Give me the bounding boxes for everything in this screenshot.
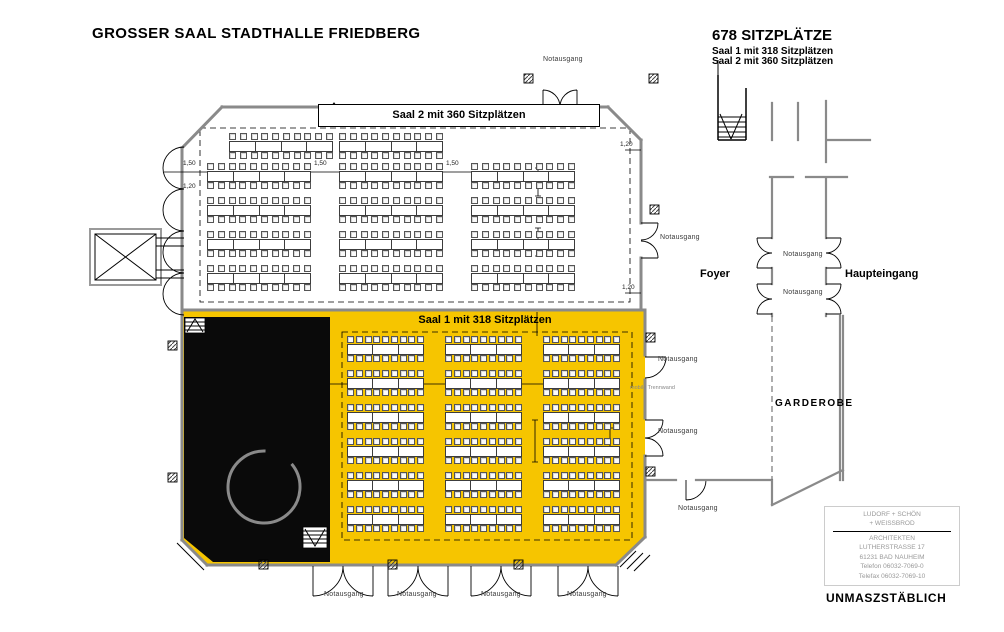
notausgang-label: Notausgang (324, 591, 364, 598)
chair-icon (304, 231, 311, 238)
chair-icon (525, 163, 532, 170)
chair-icon (471, 216, 478, 223)
chair-icon (471, 525, 478, 532)
chair-icon (552, 423, 559, 430)
chair-icon (613, 506, 620, 513)
seat-block (207, 231, 311, 257)
chair-icon (503, 265, 510, 272)
chair-icon (408, 389, 415, 396)
chair-icon (294, 152, 301, 159)
chair-icon (350, 284, 357, 291)
chair-icon (293, 197, 300, 204)
chair-icon (371, 250, 378, 257)
chair-icon (546, 284, 553, 291)
chair-icon (240, 152, 247, 159)
chair-icon (382, 216, 389, 223)
chair-icon (347, 389, 354, 396)
chair-icon (480, 336, 487, 343)
corridor-doors (757, 238, 841, 314)
chair-icon (371, 284, 378, 291)
chair-icon (543, 472, 550, 479)
chair-icon (471, 163, 478, 170)
chair-icon (546, 182, 553, 189)
chair-icon (361, 250, 368, 257)
chair-icon (239, 163, 246, 170)
chair-icon (436, 250, 443, 257)
chair-icon (339, 133, 346, 140)
chair-icon (561, 438, 568, 445)
chair-icon (493, 250, 500, 257)
chair-icon (489, 370, 496, 377)
chair-icon (207, 216, 214, 223)
chair-icon (404, 133, 411, 140)
seat-block (543, 370, 620, 396)
chair-icon (613, 389, 620, 396)
chair-icon (506, 525, 513, 532)
chair-icon (471, 472, 478, 479)
architect-city: 61231 BAD NAUHEIM (825, 553, 959, 562)
chair-icon (382, 457, 389, 464)
chair-icon (536, 265, 543, 272)
chair-icon (463, 491, 470, 498)
chair-icon (471, 355, 478, 362)
chair-icon (261, 231, 268, 238)
chair-icon (471, 423, 478, 430)
table-row (339, 273, 443, 284)
chair-icon (350, 133, 357, 140)
chair-icon (339, 197, 346, 204)
chair-icon (207, 197, 214, 204)
table-row (347, 344, 424, 355)
chair-icon (454, 404, 461, 411)
chair-icon (445, 491, 452, 498)
chair-icon (417, 438, 424, 445)
chair-icon (261, 152, 268, 159)
chair-icon (463, 355, 470, 362)
chair-icon (480, 355, 487, 362)
chair-icon (471, 231, 478, 238)
chair-icon (339, 265, 346, 272)
chair-icon (371, 265, 378, 272)
chair-icon (414, 163, 421, 170)
chair-icon (373, 457, 380, 464)
chair-icon (489, 336, 496, 343)
chair-icon (514, 265, 521, 272)
chair-icon (568, 197, 575, 204)
chair-icon (506, 389, 513, 396)
chair-icon (506, 423, 513, 430)
chair-icon (489, 472, 496, 479)
chair-icon (587, 472, 594, 479)
chair-icon (613, 438, 620, 445)
chair-icon (569, 506, 576, 513)
table-row (445, 412, 522, 423)
chair-icon (373, 355, 380, 362)
chair-icon (498, 506, 505, 513)
chair-icon (436, 163, 443, 170)
chair-icon (503, 182, 510, 189)
architect-block: LUDORF + SCHÖN + WEISSBROD ARCHITEKTEN L… (824, 506, 960, 586)
chair-icon (347, 506, 354, 513)
seat-block (543, 506, 620, 532)
chair-icon (356, 506, 363, 513)
chair-icon (463, 525, 470, 532)
chair-icon (218, 197, 225, 204)
chair-icon (498, 457, 505, 464)
chair-icon (356, 389, 363, 396)
chair-icon (391, 506, 398, 513)
chair-icon (425, 265, 432, 272)
chair-icon (543, 457, 550, 464)
chair-icon (515, 472, 522, 479)
chair-icon (404, 250, 411, 257)
chair-icon (356, 423, 363, 430)
chair-icon (304, 133, 311, 140)
chair-icon (404, 197, 411, 204)
chair-icon (503, 163, 510, 170)
chair-icon (218, 284, 225, 291)
chair-icon (596, 457, 603, 464)
chair-icon (543, 506, 550, 513)
chair-icon (417, 491, 424, 498)
chair-icon (480, 389, 487, 396)
chair-icon (569, 423, 576, 430)
chair-icon (587, 423, 594, 430)
chair-icon (498, 355, 505, 362)
chair-icon (261, 216, 268, 223)
table-row (543, 412, 620, 423)
chair-icon (272, 163, 279, 170)
chair-icon (506, 355, 513, 362)
chair-icon (480, 457, 487, 464)
chair-icon (239, 250, 246, 257)
chair-icon (489, 438, 496, 445)
table-row (445, 344, 522, 355)
chair-icon (417, 506, 424, 513)
chair-icon (347, 423, 354, 430)
table-row (543, 378, 620, 389)
chair-icon (365, 438, 372, 445)
chair-icon (371, 152, 378, 159)
chair-icon (261, 197, 268, 204)
chair-icon (498, 404, 505, 411)
chair-icon (417, 457, 424, 464)
chair-icon (596, 438, 603, 445)
chair-icon (304, 250, 311, 257)
chair-icon (489, 491, 496, 498)
chair-icon (463, 438, 470, 445)
chair-icon (361, 265, 368, 272)
chair-icon (515, 389, 522, 396)
table-row (445, 446, 522, 457)
chair-icon (382, 197, 389, 204)
chair-icon (587, 370, 594, 377)
chair-icon (365, 355, 372, 362)
chair-icon (272, 182, 279, 189)
chair-icon (425, 133, 432, 140)
table-row (207, 205, 311, 216)
chair-icon (207, 163, 214, 170)
chair-icon (382, 506, 389, 513)
chair-icon (350, 152, 357, 159)
chair-icon (436, 284, 443, 291)
chair-icon (425, 250, 432, 257)
chair-icon (339, 250, 346, 257)
chair-icon (382, 182, 389, 189)
chair-icon (382, 370, 389, 377)
chair-icon (613, 423, 620, 430)
chair-icon (498, 336, 505, 343)
chair-icon (417, 370, 424, 377)
chair-icon (503, 197, 510, 204)
dimension-label: 1,50 (314, 160, 327, 167)
chair-icon (454, 525, 461, 532)
chair-icon (250, 182, 257, 189)
chair-icon (604, 404, 611, 411)
chair-icon (361, 182, 368, 189)
chair-icon (393, 250, 400, 257)
chair-icon (282, 197, 289, 204)
chair-icon (463, 389, 470, 396)
table-row (471, 205, 575, 216)
chair-icon (408, 404, 415, 411)
chair-icon (543, 404, 550, 411)
chair-icon (373, 472, 380, 479)
chair-icon (613, 404, 620, 411)
chair-icon (596, 389, 603, 396)
chair-icon (471, 284, 478, 291)
mobile-trennwand-label: mobile Trennwand (630, 385, 675, 391)
chair-icon (613, 525, 620, 532)
chair-icon (326, 133, 333, 140)
seat-block (543, 336, 620, 362)
chair-icon (417, 525, 424, 532)
chair-icon (557, 216, 564, 223)
chair-icon (587, 525, 594, 532)
chair-icon (239, 265, 246, 272)
chair-icon (613, 472, 620, 479)
chair-icon (339, 216, 346, 223)
chair-icon (283, 133, 290, 140)
chair-icon (272, 265, 279, 272)
seat-block (347, 404, 424, 430)
chair-icon (356, 370, 363, 377)
chair-icon (304, 163, 311, 170)
chair-icon (400, 423, 407, 430)
chair-icon (480, 404, 487, 411)
chair-icon (414, 284, 421, 291)
table-row (347, 412, 424, 423)
notausgang-label: Notausgang (783, 251, 823, 258)
chair-icon (493, 265, 500, 272)
chair-icon (382, 163, 389, 170)
chair-icon (218, 216, 225, 223)
chair-icon (552, 438, 559, 445)
chair-icon (506, 438, 513, 445)
elevator-shaft (90, 229, 184, 285)
chair-icon (361, 152, 368, 159)
chair-icon (543, 525, 550, 532)
chair-icon (498, 438, 505, 445)
stage-area (184, 317, 330, 562)
dimension-label: 1,50 (183, 160, 196, 167)
chair-icon (393, 182, 400, 189)
chair-icon (536, 163, 543, 170)
chair-icon (543, 438, 550, 445)
chair-icon (514, 250, 521, 257)
chair-icon (436, 197, 443, 204)
seat-block (347, 506, 424, 532)
chair-icon (250, 265, 257, 272)
chair-icon (408, 336, 415, 343)
chair-icon (604, 438, 611, 445)
chair-icon (552, 457, 559, 464)
chair-icon (229, 163, 236, 170)
seat-block (339, 231, 443, 257)
chair-icon (229, 265, 236, 272)
chair-icon (373, 438, 380, 445)
chair-icon (498, 423, 505, 430)
dimension-label: 1,20 (183, 183, 196, 190)
chair-icon (569, 355, 576, 362)
chair-icon (515, 404, 522, 411)
seat-block (347, 370, 424, 396)
chair-icon (425, 231, 432, 238)
seat-block (471, 265, 575, 291)
notausgang-label: Notausgang (678, 505, 718, 512)
chair-icon (514, 163, 521, 170)
chair-icon (371, 197, 378, 204)
chair-icon (569, 472, 576, 479)
chair-icon (417, 404, 424, 411)
chair-icon (503, 284, 510, 291)
chair-icon (350, 250, 357, 257)
chair-icon (613, 491, 620, 498)
chair-icon (404, 152, 411, 159)
chair-icon (552, 389, 559, 396)
seat-block (471, 231, 575, 257)
chair-icon (356, 525, 363, 532)
chair-icon (604, 389, 611, 396)
chair-icon (569, 438, 576, 445)
divider (833, 531, 951, 532)
chair-icon (293, 265, 300, 272)
chair-icon (365, 506, 372, 513)
chair-icon (365, 472, 372, 479)
seat-block (543, 404, 620, 430)
chair-icon (546, 250, 553, 257)
chair-icon (261, 284, 268, 291)
chair-icon (604, 472, 611, 479)
chair-icon (282, 284, 289, 291)
chair-icon (463, 457, 470, 464)
chair-icon (525, 284, 532, 291)
seat-block (445, 472, 522, 498)
notausgang-label: Notausgang (543, 56, 583, 63)
chair-icon (391, 457, 398, 464)
chair-icon (218, 250, 225, 257)
chair-icon (250, 284, 257, 291)
chair-icon (552, 370, 559, 377)
chair-icon (578, 491, 585, 498)
chair-icon (514, 216, 521, 223)
chair-icon (350, 216, 357, 223)
chair-icon (393, 163, 400, 170)
summary-saal2: Saal 2 mit 360 Sitzplätzen (712, 56, 833, 67)
chair-icon (229, 197, 236, 204)
chair-icon (471, 250, 478, 257)
chair-icon (207, 265, 214, 272)
chair-icon (561, 404, 568, 411)
chair-icon (506, 472, 513, 479)
chair-icon (587, 506, 594, 513)
chair-icon (207, 250, 214, 257)
chair-icon (514, 284, 521, 291)
table-row (207, 239, 311, 250)
chair-icon (578, 506, 585, 513)
table-row (347, 514, 424, 525)
chair-icon (568, 265, 575, 272)
chair-icon (498, 472, 505, 479)
chair-icon (587, 438, 594, 445)
table-row (339, 205, 443, 216)
chair-icon (272, 250, 279, 257)
chair-icon (408, 491, 415, 498)
chair-icon (207, 231, 214, 238)
chair-icon (361, 163, 368, 170)
chair-icon (272, 152, 279, 159)
chair-icon (489, 355, 496, 362)
chair-icon (596, 472, 603, 479)
chair-icon (445, 389, 452, 396)
chair-icon (404, 265, 411, 272)
chair-icon (293, 216, 300, 223)
chair-icon (515, 525, 522, 532)
chair-icon (489, 423, 496, 430)
chair-icon (361, 216, 368, 223)
chair-icon (557, 265, 564, 272)
chair-icon (272, 231, 279, 238)
table-row (347, 378, 424, 389)
seat-block (347, 438, 424, 464)
chair-icon (498, 389, 505, 396)
chair-icon (371, 182, 378, 189)
table-row (445, 514, 522, 525)
seat-block (229, 133, 333, 159)
chair-icon (347, 370, 354, 377)
chair-icon (445, 423, 452, 430)
chair-icon (596, 336, 603, 343)
chair-icon (489, 506, 496, 513)
chair-icon (561, 525, 568, 532)
chair-icon (569, 336, 576, 343)
chair-icon (493, 216, 500, 223)
chair-icon (373, 491, 380, 498)
chair-icon (373, 404, 380, 411)
chair-icon (536, 197, 543, 204)
chair-icon (515, 457, 522, 464)
chair-icon (578, 472, 585, 479)
chair-icon (569, 404, 576, 411)
chair-icon (525, 216, 532, 223)
chair-icon (493, 284, 500, 291)
dimension-label: 1,20 (622, 284, 635, 291)
chair-icon (561, 355, 568, 362)
chair-icon (493, 182, 500, 189)
table-row (543, 514, 620, 525)
chair-icon (347, 525, 354, 532)
chair-icon (282, 250, 289, 257)
